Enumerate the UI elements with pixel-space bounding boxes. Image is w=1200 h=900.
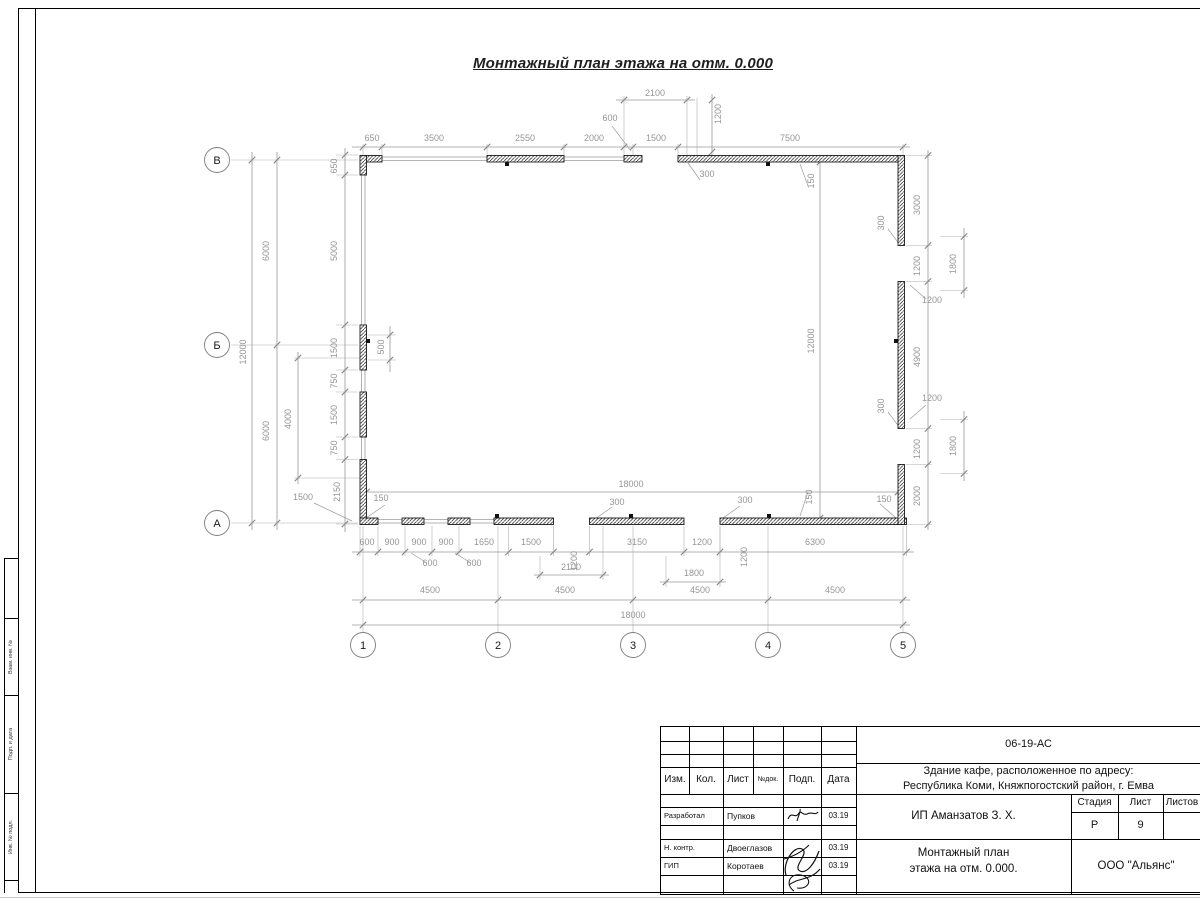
axis-label: В: [213, 155, 220, 167]
row-role-gip: ГИП: [664, 857, 722, 875]
axis-label: 2: [495, 640, 501, 652]
axis-bubble-5: [891, 633, 916, 658]
axis-label: А: [213, 518, 221, 530]
sheet-label: Лист: [1118, 794, 1163, 812]
dimension-label: 2100: [561, 562, 581, 572]
axis-label: 1: [360, 640, 366, 652]
side-stamp-cell-vzam: Взам. инв. №: [4, 618, 19, 695]
dimension-label: 750: [329, 373, 339, 388]
company-name: ООО "Альянс": [1071, 839, 1200, 894]
col-podp: Подп.: [783, 767, 821, 794]
dimension-label: 2100: [645, 88, 665, 98]
client-name: ИП Аманзатов З. Х.: [856, 794, 1071, 839]
col-ndok: №док.: [753, 767, 783, 794]
dimension-label: 1650: [474, 537, 494, 547]
stage-label: Стадия: [1071, 794, 1118, 812]
dimension-label: 1500: [329, 338, 339, 358]
dimension-label: 3150: [627, 537, 647, 547]
row-name-ncontr: Двоеглазов: [727, 839, 782, 857]
dimension-label: 1500: [293, 492, 313, 502]
dimension-label: 12000: [806, 328, 816, 353]
signature-developer: [785, 807, 819, 824]
dimension-label: 3500: [424, 133, 444, 143]
dimension-label: 900: [411, 537, 426, 547]
col-kol: Кол.: [689, 767, 723, 794]
dimension-label: 300: [876, 215, 886, 230]
dimension-label: 5000: [329, 241, 339, 261]
dimension-label: 1200: [912, 439, 922, 459]
dimension-label: 300: [876, 398, 886, 413]
dimension-label: 750: [329, 440, 339, 455]
col-list: Лист: [723, 767, 753, 794]
dimension-label: 150: [373, 493, 388, 503]
axis-bubbles: ВБА12345: [205, 148, 916, 658]
row-role-ncontr: Н. контр.: [664, 839, 722, 857]
side-stamp-cell-inv: Инв. № подл.: [4, 793, 19, 880]
dimension-label: 1200: [739, 547, 749, 567]
axis-bubble-В: [205, 148, 230, 173]
dimension-label: 1500: [521, 537, 541, 547]
dimension-label: 600: [602, 113, 617, 123]
sheets-total: [1163, 812, 1200, 839]
dimension-label: 1200: [713, 104, 723, 124]
axis-bubble-1: [351, 633, 376, 658]
dimension-label: 4500: [690, 585, 710, 595]
dimension-label: 500: [376, 339, 386, 354]
axis-label: 5: [900, 640, 906, 652]
dimension-label: 300: [609, 497, 624, 507]
dimension-label: 900: [438, 537, 453, 547]
axis-bubble-Б: [205, 333, 230, 358]
dimension-label: 600: [359, 537, 374, 547]
axis-bubble-4: [756, 633, 781, 658]
dimension-label: 7500: [780, 133, 800, 143]
axis-bubble-3: [621, 633, 646, 658]
col-izm: Изм.: [661, 767, 689, 794]
dimension-label: 150: [804, 489, 814, 504]
side-stamp-divider: [4, 558, 19, 559]
axis-label: Б: [213, 340, 220, 352]
side-stamp-divider: [4, 880, 19, 881]
dimension-label: 1800: [948, 254, 958, 274]
dimension-label: 2000: [912, 486, 922, 506]
drawing-title: Монтажный план этажа на отм. 0.000: [323, 55, 923, 72]
wall-segments: [360, 156, 907, 525]
dimension-label: 1200: [922, 295, 942, 305]
dimension-label: 4500: [825, 585, 845, 595]
axis-label: 3: [630, 640, 636, 652]
door-markers: [366, 162, 898, 518]
dimension-label: 4000: [283, 409, 293, 429]
title-block: Изм. Кол. Лист №док. Подп. Дата Разработ…: [660, 726, 1200, 895]
dimension-label: 150: [806, 173, 816, 188]
dimension-label: 650: [364, 133, 379, 143]
dimension-label: 1200: [912, 256, 922, 276]
dimension-label: 4500: [555, 585, 575, 595]
dimension-label: 2150: [332, 482, 342, 502]
dimension-label: 6000: [261, 421, 271, 441]
axis-label: 4: [765, 640, 771, 652]
dimension-label: 900: [384, 537, 399, 547]
leader-lines: [314, 126, 926, 563]
row-date-ncontr: 03.19: [821, 839, 856, 857]
drawing-sheet: { "sheet": { "title": "Монтажный план эт…: [0, 0, 1200, 900]
dimension-label: 18000: [620, 610, 645, 620]
signature-ncontr-gip: [779, 837, 823, 893]
row-name-gip: Коротаев: [727, 857, 782, 875]
dimension-label: 1800: [948, 436, 958, 456]
frame-top-line: [18, 8, 1200, 9]
row-role-developer: Разработал: [664, 807, 722, 825]
dimension-label: 12000: [238, 339, 248, 364]
dimension-label: 300: [737, 495, 752, 505]
dimension-label: 650: [329, 158, 339, 173]
dimension-label: 600: [422, 558, 437, 568]
sheet-shadow-rule: [0, 897, 1200, 898]
dimension-label: 1500: [646, 133, 666, 143]
row-date-developer: 03.19: [821, 807, 856, 825]
row-name-developer: Пупков: [727, 807, 782, 825]
sheets-label: Листов: [1163, 794, 1200, 812]
dimension-label: 150: [876, 494, 891, 504]
col-data: Дата: [821, 767, 856, 794]
dimension-label: 2550: [515, 133, 535, 143]
dimension-label: 1500: [329, 405, 339, 425]
project-line2: Республика Коми, Княжпогостский район, г…: [856, 779, 1200, 795]
stage-value: Р: [1071, 812, 1118, 839]
dimension-ticks: [249, 97, 967, 628]
project-line1: Здание кафе, расположенное по адресу:: [856, 764, 1200, 780]
dimension-label: 4500: [420, 585, 440, 595]
dimension-labels: 6503500255020001500750021006001200300150…: [238, 88, 958, 620]
frame-left-inner-line: [35, 8, 36, 893]
dimension-label: 300: [699, 169, 714, 179]
doc-number: 06-19-АС: [856, 727, 1200, 763]
dimension-label: 2000: [584, 133, 604, 143]
extension-lines: [231, 96, 968, 632]
axis-bubble-2: [486, 633, 511, 658]
row-date-gip: 03.19: [821, 857, 856, 875]
dimension-label: 1200: [692, 537, 712, 547]
dimension-label: 1800: [684, 568, 704, 578]
axis-bubble-А: [205, 511, 230, 536]
dimension-label: 4900: [912, 347, 922, 367]
dimension-label: 600: [466, 558, 481, 568]
dimension-label: 6000: [261, 241, 271, 261]
sheet-name-line2: этажа на отм. 0.000.: [856, 859, 1071, 879]
sheet-number: 9: [1118, 812, 1163, 839]
dimension-label: 18000: [618, 479, 643, 489]
dimension-label: 6300: [805, 537, 825, 547]
side-stamp-cell-podp: Подп. и дата: [4, 695, 19, 793]
dimension-lines: [252, 94, 964, 625]
dimension-label: 1200: [569, 551, 579, 571]
window-lines: [362, 157, 625, 523]
dimension-label: 1200: [922, 393, 942, 403]
dimension-label: 3000: [912, 195, 922, 215]
